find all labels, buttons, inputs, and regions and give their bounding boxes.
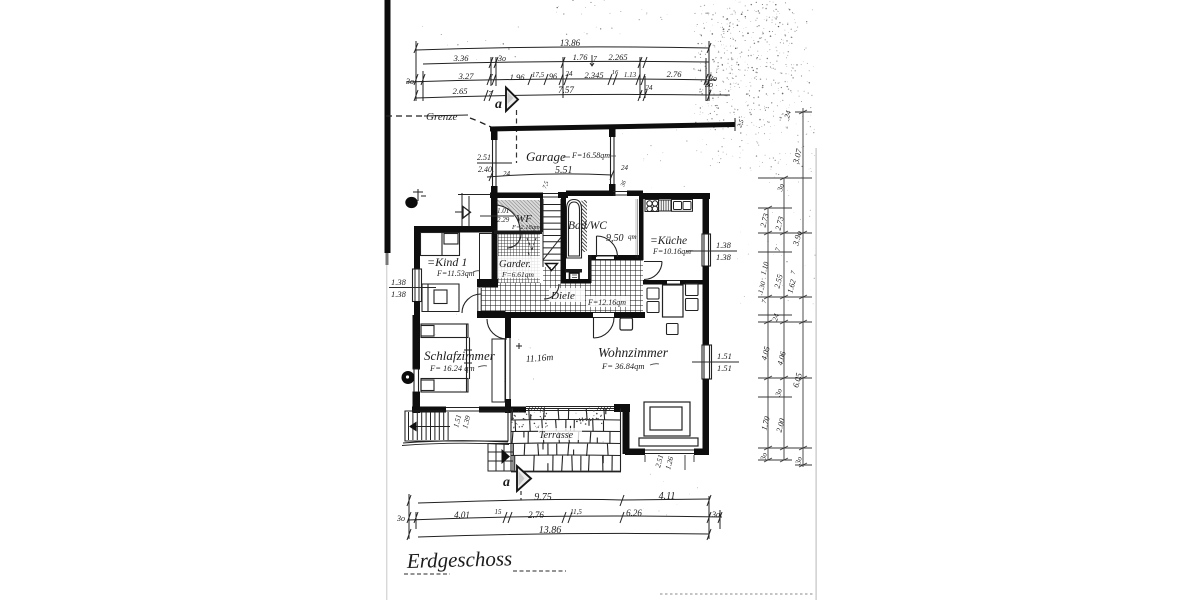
- svg-text:3o: 3o: [405, 77, 414, 86]
- svg-text:11.16m: 11.16m: [526, 353, 554, 365]
- svg-text:Grenze: Grenze: [426, 111, 457, 123]
- svg-text:7.57: 7.57: [558, 85, 574, 95]
- svg-text:11,5: 11,5: [570, 508, 582, 516]
- svg-text:1.38: 1.38: [391, 277, 407, 287]
- svg-text:3o: 3o: [711, 510, 720, 519]
- svg-text:Garder.: Garder.: [499, 259, 531, 270]
- svg-text:15: 15: [495, 508, 503, 516]
- svg-text:24: 24: [621, 164, 629, 172]
- svg-text:Terrasse: Terrasse: [539, 430, 574, 441]
- svg-text:=Kind 1: =Kind 1: [427, 255, 467, 269]
- svg-text:1.96: 1.96: [510, 72, 526, 82]
- svg-text:=Küche: =Küche: [650, 235, 687, 247]
- svg-text:1.38: 1.38: [391, 289, 407, 299]
- svg-text:2.51: 2.51: [477, 153, 491, 162]
- svg-text:Wohnzimmer: Wohnzimmer: [598, 345, 669, 360]
- svg-text:1.51: 1.51: [717, 351, 732, 361]
- svg-text:2.265: 2.265: [608, 52, 627, 62]
- svg-text:2.40: 2.40: [478, 165, 492, 174]
- svg-text:2.345: 2.345: [584, 70, 603, 80]
- svg-text:96: 96: [549, 72, 557, 81]
- svg-text:5.51: 5.51: [555, 165, 573, 176]
- svg-text:1.38: 1.38: [716, 240, 732, 250]
- svg-text:Erdgeschoss: Erdgeschoss: [406, 546, 513, 573]
- svg-text:F=6.61qm: F=6.61qm: [501, 270, 535, 279]
- svg-text:13.86: 13.86: [560, 38, 581, 48]
- svg-text:24: 24: [566, 70, 574, 78]
- svg-text:a: a: [503, 475, 510, 490]
- svg-text:1.76: 1.76: [573, 52, 589, 62]
- svg-text:3o: 3o: [497, 54, 506, 63]
- svg-text:7: 7: [489, 72, 493, 81]
- svg-text:6.26: 6.26: [626, 508, 642, 518]
- svg-text:1.51: 1.51: [717, 363, 732, 373]
- svg-text:7: 7: [593, 54, 597, 63]
- svg-text:24: 24: [503, 170, 511, 178]
- svg-text:F=2.18qm: F=2.18qm: [511, 224, 540, 231]
- svg-text:4.01: 4.01: [454, 510, 470, 520]
- svg-text:Schlafzimmer: Schlafzimmer: [424, 348, 496, 363]
- svg-text:F= 16.24 qm: F= 16.24 qm: [429, 363, 475, 373]
- svg-text:2.29: 2.29: [497, 216, 510, 224]
- svg-text:7: 7: [488, 89, 492, 98]
- svg-text:2.76: 2.76: [528, 510, 544, 520]
- svg-text:3.36: 3.36: [453, 53, 470, 63]
- svg-text:Garage: Garage: [526, 149, 566, 164]
- svg-text:Bad/WC: Bad/WC: [568, 220, 607, 232]
- svg-text:9,50: 9,50: [606, 233, 624, 244]
- svg-text:F= 36.84qm: F= 36.84qm: [601, 361, 645, 371]
- svg-text:1.01: 1.01: [497, 207, 509, 215]
- svg-text:F=12.16qm: F=12.16qm: [587, 298, 626, 307]
- svg-text:4.11: 4.11: [659, 491, 676, 502]
- svg-text:F=16.58qm: F=16.58qm: [571, 151, 610, 160]
- svg-text:17,5: 17,5: [532, 71, 545, 79]
- svg-text:24: 24: [646, 84, 654, 92]
- svg-text:1.38: 1.38: [716, 252, 732, 262]
- svg-text:9.75: 9.75: [534, 492, 552, 503]
- svg-text:2.76: 2.76: [667, 69, 683, 79]
- svg-text:3o: 3o: [704, 80, 713, 89]
- svg-text:3o: 3o: [396, 514, 405, 523]
- svg-text:1.13: 1.13: [624, 71, 637, 79]
- svg-text:13.86: 13.86: [539, 525, 562, 536]
- svg-text:2.65: 2.65: [453, 86, 468, 96]
- svg-text:3.27: 3.27: [458, 71, 475, 81]
- svg-text:F=11.53qm: F=11.53qm: [436, 269, 475, 278]
- svg-text:a: a: [495, 97, 502, 112]
- svg-text:F=10.16qm: F=10.16qm: [652, 247, 691, 256]
- svg-text:16: 16: [612, 69, 619, 76]
